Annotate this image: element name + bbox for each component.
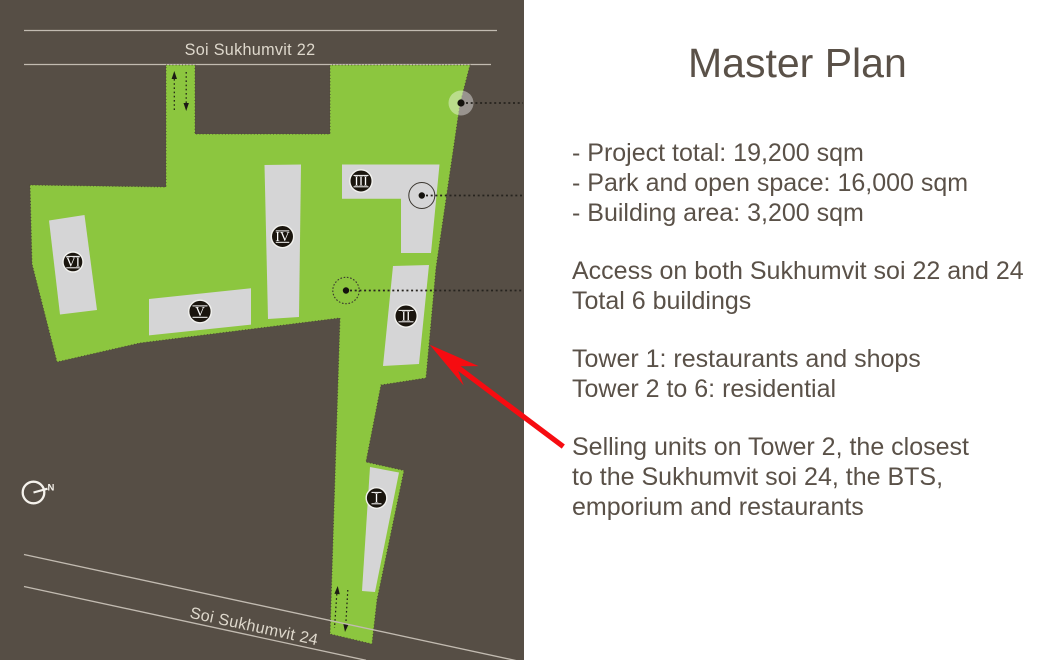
svg-text:Soi Sukhumvit 22: Soi Sukhumvit 22 xyxy=(185,41,316,59)
svg-text:N: N xyxy=(48,483,55,494)
